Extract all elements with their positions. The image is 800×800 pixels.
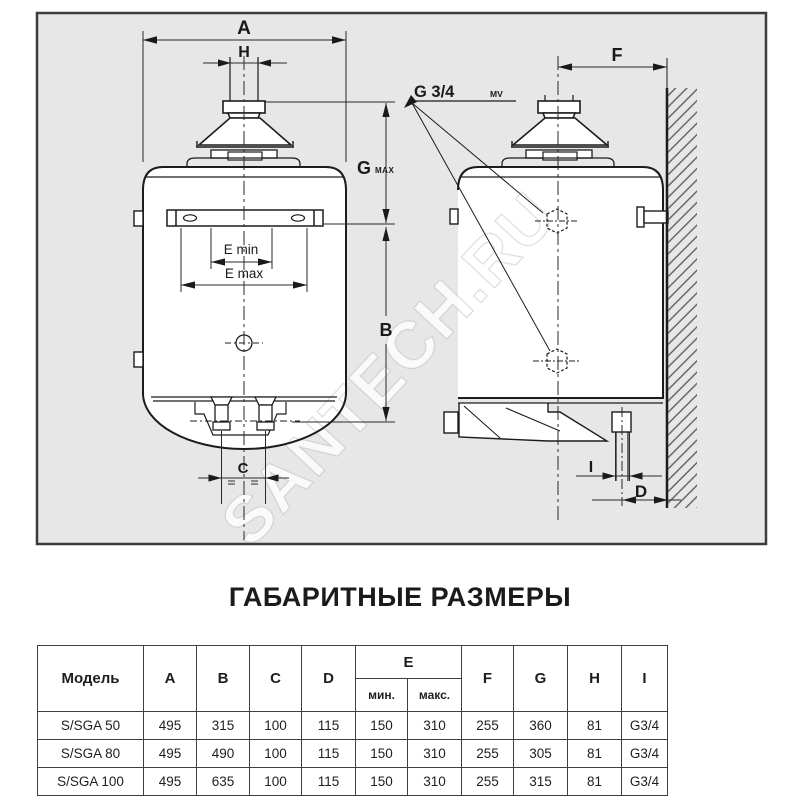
column-header-e-min: мин. [356, 679, 408, 712]
table-row: S/SGA 50 495 315 100 115 150 310 255 360… [38, 712, 668, 740]
model-cell: S/SGA 50 [38, 712, 144, 740]
table-cell: 115 [302, 712, 356, 740]
table-cell: 115 [302, 768, 356, 796]
table-cell: 310 [408, 740, 462, 768]
dim-label-b: B [380, 320, 393, 340]
dim-label-h: H [238, 44, 250, 61]
model-cell: S/SGA 100 [38, 768, 144, 796]
table-cell: 100 [250, 768, 302, 796]
dim-label-a: A [237, 18, 251, 39]
table-cell: 310 [408, 768, 462, 796]
dim-label-g: G [357, 158, 371, 178]
model-cell: S/SGA 80 [38, 740, 144, 768]
table-cell: 81 [568, 740, 622, 768]
column-header-i: I [622, 646, 668, 712]
table-cell: 81 [568, 768, 622, 796]
wall-bracket [637, 207, 644, 227]
table-cell: 100 [250, 712, 302, 740]
column-header-b: B [197, 646, 250, 712]
column-header-f: F [462, 646, 514, 712]
table-cell: 150 [356, 740, 408, 768]
thread-label-sub: MV [490, 89, 503, 99]
table-cell: 310 [408, 712, 462, 740]
dimensions-table: Модель A B C D E F G H I мин. макс. S/SG… [37, 645, 668, 796]
table-cell: 495 [144, 768, 197, 796]
dim-label-e-min: E min [224, 242, 259, 257]
wall-hatching [668, 88, 697, 508]
table-cell: 315 [197, 712, 250, 740]
column-header-a: A [144, 646, 197, 712]
drain-valve [444, 412, 458, 433]
column-header-h: H [568, 646, 622, 712]
side-tab [450, 209, 458, 224]
dim-label-i: I [589, 459, 593, 476]
table-cell: 635 [197, 768, 250, 796]
page: SANTECH.RU [0, 0, 800, 800]
table-cell: 255 [462, 712, 514, 740]
table-cell: G3/4 [622, 768, 668, 796]
column-header-d: D [302, 646, 356, 712]
column-header-model: Модель [38, 646, 144, 712]
dim-label-e-max: E max [225, 266, 264, 281]
table-cell: 100 [250, 740, 302, 768]
table-cell: G3/4 [622, 712, 668, 740]
dim-label-c: C [238, 460, 249, 477]
side-tab [134, 352, 143, 367]
table-cell: G3/4 [622, 740, 668, 768]
dim-label-d: D [635, 482, 647, 501]
table-cell: 490 [197, 740, 250, 768]
section-title: ГАБАРИТНЫЕ РАЗМЕРЫ [0, 582, 800, 613]
table-cell: 315 [514, 768, 568, 796]
dim-label-g-sub: MAX [375, 166, 394, 175]
table-cell: 255 [462, 768, 514, 796]
table-cell: 495 [144, 740, 197, 768]
table-row: S/SGA 100 495 635 100 115 150 310 255 31… [38, 768, 668, 796]
table-cell: 115 [302, 740, 356, 768]
dim-label-f: F [612, 45, 623, 65]
table-cell: 360 [514, 712, 568, 740]
dimension-drawing: SANTECH.RU [0, 0, 800, 560]
table-cell: 495 [144, 712, 197, 740]
column-header-e: E [356, 646, 462, 679]
table-cell: 150 [356, 712, 408, 740]
table-cell: 150 [356, 768, 408, 796]
thread-label: G 3/4 [414, 83, 455, 101]
side-tab [134, 211, 143, 226]
column-header-c: C [250, 646, 302, 712]
column-header-e-max: макс. [408, 679, 462, 712]
table-cell: 255 [462, 740, 514, 768]
column-header-g: G [514, 646, 568, 712]
table-row: S/SGA 80 495 490 100 115 150 310 255 305… [38, 740, 668, 768]
table-cell: 305 [514, 740, 568, 768]
table-cell: 81 [568, 712, 622, 740]
